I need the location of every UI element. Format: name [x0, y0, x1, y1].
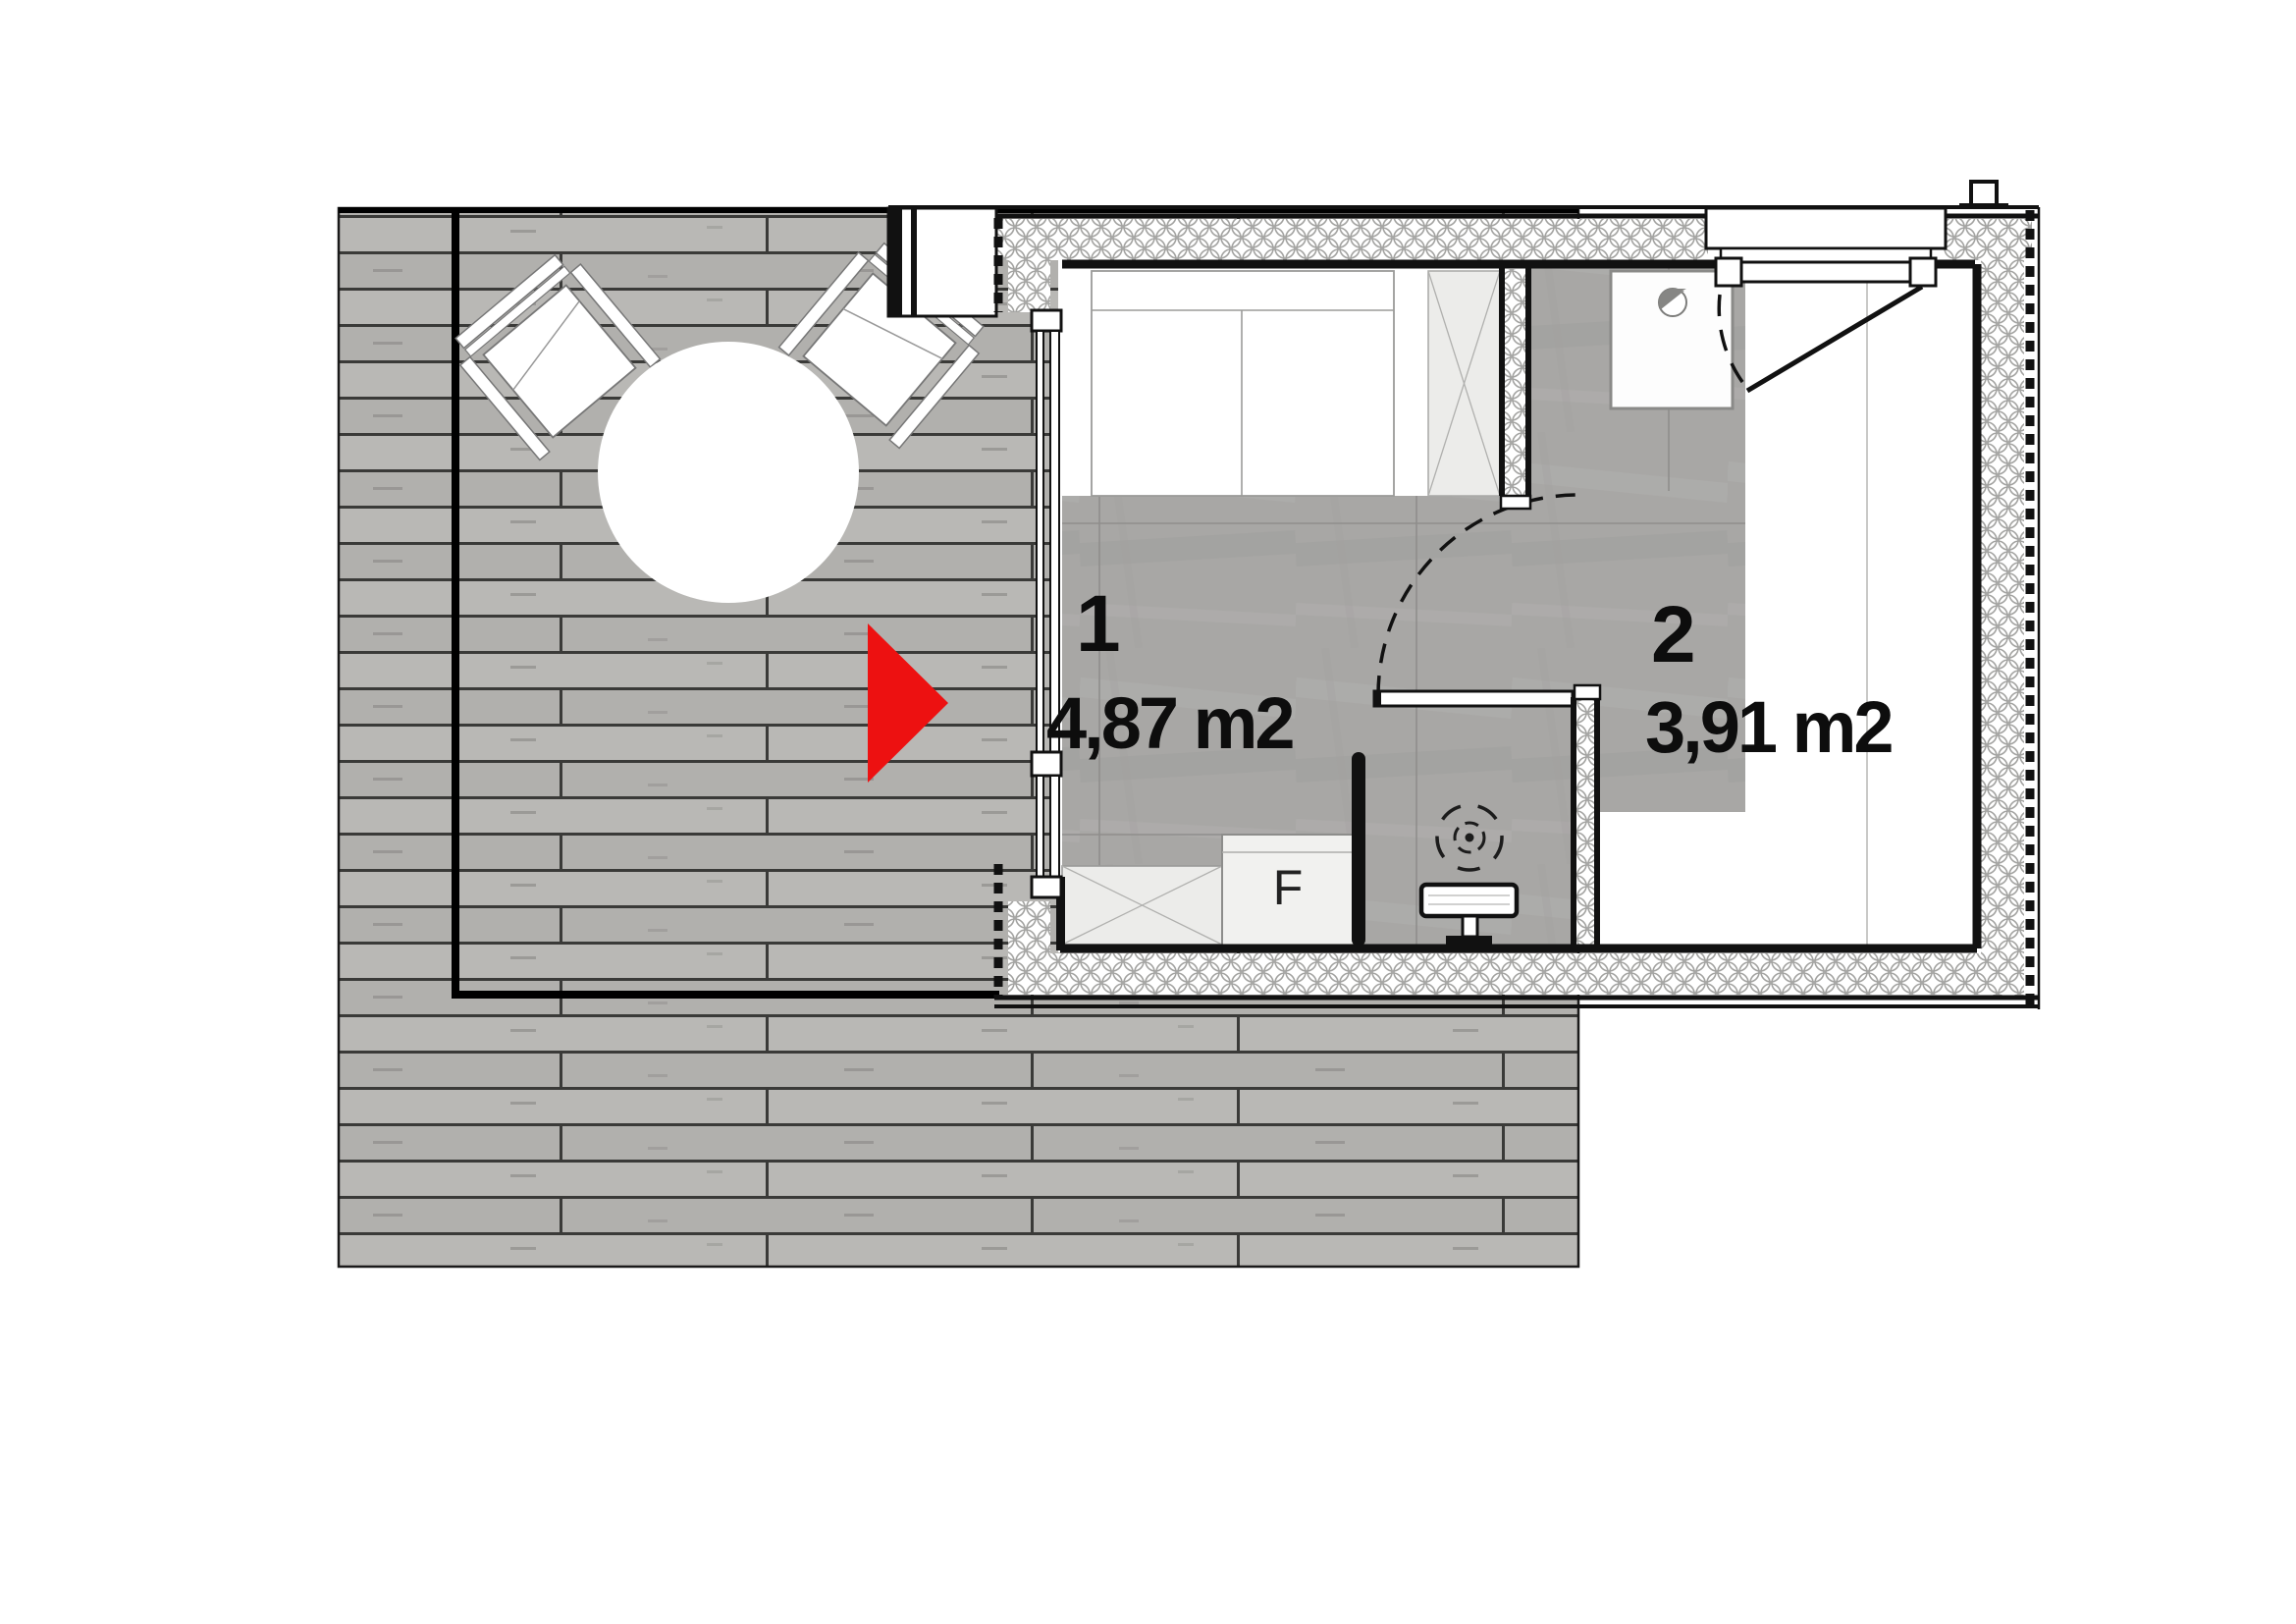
floor-plan-canvas: F: [0, 0, 2296, 1624]
shower-drain-icon: [1659, 289, 1686, 316]
floor-plan-drawing: F: [0, 0, 2296, 1624]
partition-toilet: [1574, 685, 1600, 947]
partition-shower: [1501, 268, 1530, 509]
bed: [1092, 271, 1394, 496]
room2-number: 2: [1651, 590, 1696, 679]
shower-tray: [1611, 271, 1733, 408]
round-table: [598, 342, 859, 603]
room1-area: 4,87 m2: [1046, 682, 1293, 764]
room2-area: 3,91 m2: [1645, 686, 1892, 768]
room1-number: 1: [1076, 579, 1121, 669]
wall-right: [1977, 207, 2039, 1009]
wall-stub-left: [888, 208, 996, 316]
room2-floor-lower: [1600, 812, 1747, 945]
fridge-cabinet: F: [1222, 835, 1355, 946]
toilet-wall-left: [1352, 752, 1365, 947]
wardrobe-cabinet: [1428, 271, 1500, 496]
base-cabinet: [1062, 866, 1222, 945]
wall-bottom: [994, 948, 2039, 1006]
fridge-label: F: [1273, 860, 1304, 915]
cabin-building: F: [888, 182, 2039, 1009]
